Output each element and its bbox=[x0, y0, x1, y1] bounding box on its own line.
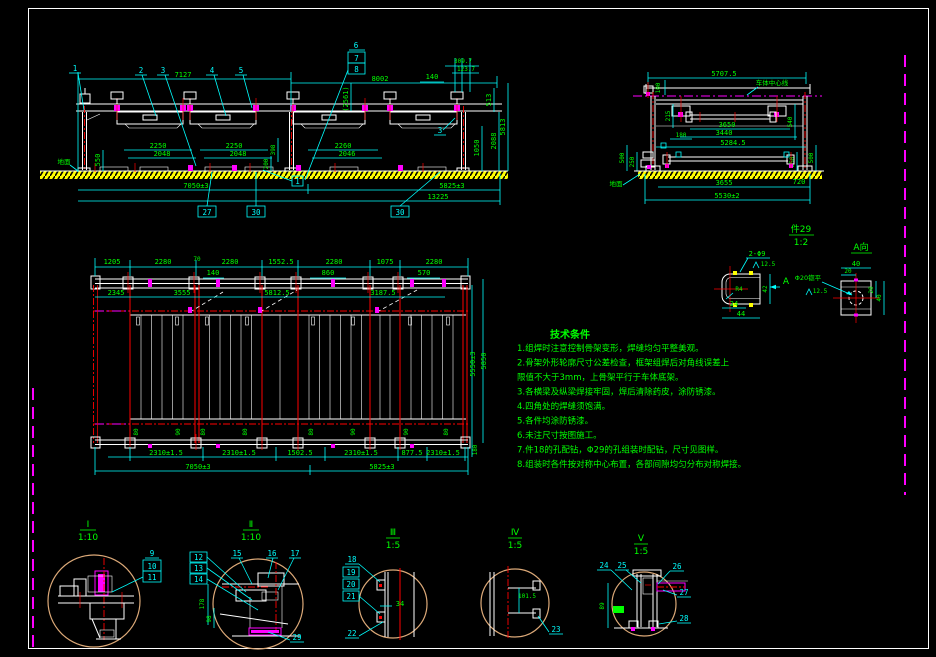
detail-II-title: Ⅱ bbox=[249, 520, 253, 530]
dim-7050: 7050±3 bbox=[183, 182, 208, 190]
plan-dim-5850: 5850 bbox=[480, 353, 488, 370]
detail29-hole-note: 2-Φ9 bbox=[749, 250, 766, 258]
dim-2561: (2561) bbox=[342, 86, 350, 111]
detail29-roughness-1: 12.5 bbox=[761, 261, 776, 268]
dim-2048-a: 2048 bbox=[154, 150, 171, 158]
note-line-3: 限值不大于3mm，上骨架平行于车体底架。 bbox=[517, 372, 683, 383]
balloon-3b: 3 bbox=[438, 126, 443, 135]
green-marker bbox=[613, 606, 624, 613]
balloon-8: 8 bbox=[354, 65, 359, 74]
dim-2260: 2260 bbox=[335, 142, 352, 150]
dim-7127: 7127 bbox=[175, 71, 192, 79]
balloon-27-boxed: 27 bbox=[202, 208, 211, 217]
balloon-26: 26 bbox=[672, 562, 682, 571]
balloon-14: 14 bbox=[194, 575, 204, 584]
balloon-callouts: 1 2 3 4 5 6 7 8 1 3 bbox=[69, 41, 455, 186]
plan-dim-5550: 5550±3 bbox=[469, 351, 477, 376]
elevation-dimensions: 7127 (2561) 8002 140 309.7 123.7 513 208… bbox=[58, 58, 509, 217]
balloon-29: 29 bbox=[292, 633, 301, 642]
note-line-6: 5.各件均涂防锈漆。 bbox=[517, 416, 593, 427]
dim-180: 180 bbox=[676, 132, 687, 139]
roof-unit-1 bbox=[114, 98, 186, 128]
balloon-9: 9 bbox=[150, 549, 155, 558]
dim-2046: 2046 bbox=[339, 150, 356, 158]
ground-label-right: 地面 bbox=[610, 179, 624, 188]
detail-II-dim-178: 178 bbox=[199, 598, 206, 609]
dim-540: 540 bbox=[787, 116, 794, 127]
detail-II-dim-98: 98 bbox=[206, 615, 213, 623]
plan-dim-1552: 1552.5 bbox=[268, 258, 293, 266]
note-line-5: 4.四角处的焊缝须饱满。 bbox=[517, 401, 610, 412]
dim-250-left: 250 bbox=[629, 156, 636, 167]
plan-dim-7050: 7050±3 bbox=[185, 463, 210, 471]
plan-bdim-1: 2310±1.5 bbox=[149, 449, 183, 457]
plan-dim-180: 180 bbox=[472, 444, 479, 455]
dim-5813: 5813 bbox=[499, 119, 507, 136]
plan-dim-5812: 5812.5 bbox=[264, 289, 289, 297]
detail29-d40-right: 40 bbox=[876, 294, 883, 302]
plan-dim-3555: 3555 bbox=[174, 289, 191, 297]
cad-drawing-canvas: 1 2 3 4 5 6 7 8 1 3 7127 (2561) 8002 140… bbox=[0, 0, 936, 657]
detail29-title: 件29 bbox=[791, 223, 812, 235]
gap-label-6: 90 bbox=[350, 428, 357, 436]
technical-notes: 技术条件 1.组焊时注意控制骨架变形，焊缝均匀平整美观。 2.骨架外形轮廓尺寸公… bbox=[517, 328, 746, 470]
gap-label-5: 80 bbox=[308, 428, 315, 436]
note-line-9: 8.组装时各件按对称中心布置，各部间隙均匀分布对称焊接。 bbox=[517, 459, 746, 470]
balloon-2: 2 bbox=[139, 66, 144, 75]
dim-5707-5: 5707.5 bbox=[711, 70, 736, 78]
note-line-8: 7.件18的孔配钻，Φ29的孔组装时配钻，尺寸见图样。 bbox=[517, 445, 723, 456]
detail-III-dim-34: 34 bbox=[396, 600, 404, 608]
detail29-d20-right: 20 bbox=[868, 286, 875, 294]
plan-dim-1075: 1075 bbox=[377, 258, 394, 266]
ground-label-left: 地面 bbox=[58, 157, 72, 166]
note-line-2: 2.骨架外形轮廓尺寸公差检查，框架组焊后对角线误差上 bbox=[517, 358, 730, 369]
detail-I-title: Ⅰ bbox=[87, 520, 90, 530]
detail29-roughness-2: 12.5 bbox=[813, 288, 828, 295]
centerline-label: 车体中心线 bbox=[756, 78, 789, 87]
plan-dim-2280c: 2280 bbox=[326, 258, 343, 266]
balloon-4: 4 bbox=[210, 66, 215, 75]
detail-V-dim-89: 89 bbox=[599, 602, 606, 610]
gap-label-8: 80 bbox=[443, 428, 450, 436]
dim-2250-b: 2250 bbox=[226, 142, 243, 150]
balloon-30b-boxed: 30 bbox=[395, 208, 405, 217]
detail29-d20-top: 20 bbox=[844, 268, 852, 275]
dim-3655: 3655 bbox=[716, 179, 733, 187]
balloon-16: 16 bbox=[267, 549, 277, 558]
roof-unit-3 bbox=[290, 98, 368, 128]
plan-bdim-2: 2310±1.5 bbox=[222, 449, 256, 457]
plan-panel-seams bbox=[137, 315, 454, 419]
dim-550: 550 bbox=[94, 154, 102, 167]
balloon-23: 23 bbox=[551, 625, 560, 634]
plan-dim-140: 140 bbox=[207, 269, 220, 277]
balloon-5: 5 bbox=[239, 66, 244, 75]
note-line-7: 6.未注尺寸按图施工。 bbox=[517, 430, 602, 441]
dim-398: 398 bbox=[270, 144, 277, 155]
balloon-20: 20 bbox=[346, 580, 356, 589]
plan-view: 1205 2280 70 2280 1552.5 2280 1075 2280 … bbox=[91, 256, 488, 475]
balloon-15: 15 bbox=[232, 549, 241, 558]
dim-140: 140 bbox=[426, 73, 439, 81]
detail-I: Ⅰ 1:10 9 10 11 bbox=[48, 520, 161, 647]
side-view: 5707.5 100 车体中心线 215 180 3650 3440 5284.… bbox=[610, 70, 825, 204]
plan-dim-3187: 3187.5 bbox=[370, 289, 395, 297]
dim-5825: 5825±3 bbox=[439, 182, 464, 190]
roof-unit-2 bbox=[187, 98, 259, 128]
dim-215: 215 bbox=[665, 110, 672, 121]
plan-dim-570: 570 bbox=[418, 269, 431, 277]
balloon-13: 13 bbox=[194, 564, 203, 573]
plan-dim-860: 860 bbox=[322, 269, 335, 277]
plan-bdim-4: 2310±1.5 bbox=[344, 449, 378, 457]
balloon-25: 25 bbox=[617, 561, 626, 570]
dim-123-7: 123.7 bbox=[457, 66, 475, 73]
balloon-1: 1 bbox=[73, 64, 78, 73]
ground-hatch-left bbox=[40, 171, 508, 179]
dim-5284-5: 5284.5 bbox=[720, 139, 745, 147]
plan-dim-2280d: 2280 bbox=[426, 258, 443, 266]
detail-V: Ⅴ 1:5 89 24 25 26 27 28 bbox=[597, 534, 691, 636]
gap-label-7: 90 bbox=[403, 428, 410, 436]
dim-8002: 8002 bbox=[372, 75, 389, 83]
detail-I-circle bbox=[48, 555, 140, 647]
plan-dim-2280b: 2280 bbox=[222, 258, 239, 266]
balloon-22: 22 bbox=[347, 629, 356, 638]
balloon-24: 24 bbox=[599, 561, 609, 570]
dim-2088: 2088 bbox=[490, 133, 498, 150]
detail29-scale: 1:2 bbox=[794, 238, 808, 248]
dim-200: 200 bbox=[263, 158, 270, 169]
balloon-21: 21 bbox=[346, 592, 355, 601]
plan-dim-2280a: 2280 bbox=[155, 258, 172, 266]
dim-3650: 3650 bbox=[719, 121, 736, 129]
balloon-27: 27 bbox=[679, 588, 688, 597]
dim-500-right: 500 bbox=[808, 152, 815, 163]
plan-dim-2345: 2345 bbox=[108, 289, 125, 297]
column-center bbox=[285, 106, 297, 174]
plan-dim-5825: 5825±3 bbox=[369, 463, 394, 471]
detail29-radius: R4 bbox=[735, 286, 743, 293]
dim-13225: 13225 bbox=[427, 193, 448, 201]
dim-5530: 5530±2 bbox=[714, 192, 739, 200]
detail-IV: Ⅳ 1:5 101.5 23 bbox=[481, 528, 563, 640]
dim-309-7: 309.7 bbox=[454, 58, 472, 65]
detail29-d42: 42 bbox=[762, 285, 769, 293]
detail29-a-view bbox=[833, 273, 879, 323]
balloon-3: 3 bbox=[161, 66, 166, 75]
balloon-11: 11 bbox=[147, 573, 156, 582]
plan-bdim-5: 877.5 bbox=[401, 449, 422, 457]
plan-dim-70: 70 bbox=[193, 256, 201, 263]
elevation-view: 1 2 3 4 5 6 7 8 1 3 7127 (2561) 8002 140… bbox=[40, 41, 508, 217]
detail-III: Ⅲ 1:5 34 18 19 20 21 22 bbox=[343, 528, 427, 640]
detail29-d40-top: 40 bbox=[852, 260, 860, 268]
balloon-12: 12 bbox=[194, 553, 203, 562]
detail29-d24: 24 bbox=[730, 300, 738, 308]
notes-title: 技术条件 bbox=[550, 328, 590, 341]
detail-part29: 件29 1:2 2-Φ9 12.5 R4 42 24 44 A A向 40 20… bbox=[714, 223, 884, 323]
weld-mark bbox=[676, 152, 681, 157]
note-line-4: 3.各横梁及纵梁焊接牢固，焊后清除药皮，涂防锈漆。 bbox=[517, 387, 721, 398]
balloon-30a-boxed: 30 bbox=[251, 208, 261, 217]
note-line-1: 1.组焊时注意控制骨架变形，焊缝均匀平整美观。 bbox=[517, 343, 704, 354]
detail-IV-scale: 1:5 bbox=[508, 541, 522, 551]
detail29-d44: 44 bbox=[737, 310, 745, 318]
detail-V-title: Ⅴ bbox=[638, 534, 645, 544]
detail29-arrow-label: A bbox=[783, 277, 790, 287]
plan-dim-1205: 1205 bbox=[104, 258, 121, 266]
balloon-10: 10 bbox=[147, 562, 157, 571]
plan-bdim-3: 1502.5 bbox=[287, 449, 312, 457]
detail-II-scale: 1:10 bbox=[241, 533, 261, 543]
balloon-1-boxed: 1 bbox=[295, 177, 300, 186]
detail29-counterbore: Φ20锪平 bbox=[795, 273, 822, 282]
balloon-17: 17 bbox=[290, 549, 299, 558]
dim-3440: 3440 bbox=[716, 129, 733, 137]
dim-500-left: 500 bbox=[619, 152, 626, 163]
detail-I-scale: 1:10 bbox=[78, 533, 98, 543]
dim-2048-b: 2048 bbox=[230, 150, 247, 158]
balloon-7: 7 bbox=[354, 54, 359, 63]
gap-label-4: 80 bbox=[242, 428, 249, 436]
detail-IV-circle bbox=[481, 569, 549, 637]
balloon-6: 6 bbox=[354, 41, 359, 50]
gap-label-1: 80 bbox=[133, 428, 140, 436]
plan-bottom-rail bbox=[91, 434, 470, 450]
plan-bdim-6: 2310±1.5 bbox=[426, 449, 460, 457]
hanger-brackets bbox=[111, 92, 463, 104]
gap-label-2: 90 bbox=[175, 428, 182, 436]
dim-100: 100 bbox=[655, 82, 662, 93]
dim-2250-a: 2250 bbox=[150, 142, 167, 150]
column-right bbox=[457, 106, 469, 174]
balloon-28: 28 bbox=[679, 614, 689, 623]
gap-label-3: 80 bbox=[200, 428, 207, 436]
detail-III-circle bbox=[359, 570, 427, 638]
detail-IV-title: Ⅳ bbox=[511, 528, 520, 538]
detail-II: Ⅱ 1:10 12 13 14 15 16 17 29 178 98 bbox=[190, 520, 304, 649]
detail29-view-label: A向 bbox=[853, 241, 868, 253]
dim-1050: 1050 bbox=[473, 140, 481, 157]
detail-III-title: Ⅲ bbox=[390, 528, 396, 538]
detail-V-circle bbox=[612, 572, 676, 636]
dim-513: 513 bbox=[485, 94, 493, 107]
detail-V-scale: 1:5 bbox=[634, 547, 648, 557]
detail-IV-dim-101-5: 101.5 bbox=[518, 593, 536, 600]
detail-III-scale: 1:5 bbox=[386, 541, 400, 551]
balloon-19: 19 bbox=[346, 568, 355, 577]
balloon-18: 18 bbox=[347, 555, 357, 564]
dim-720: 720 bbox=[793, 178, 806, 186]
